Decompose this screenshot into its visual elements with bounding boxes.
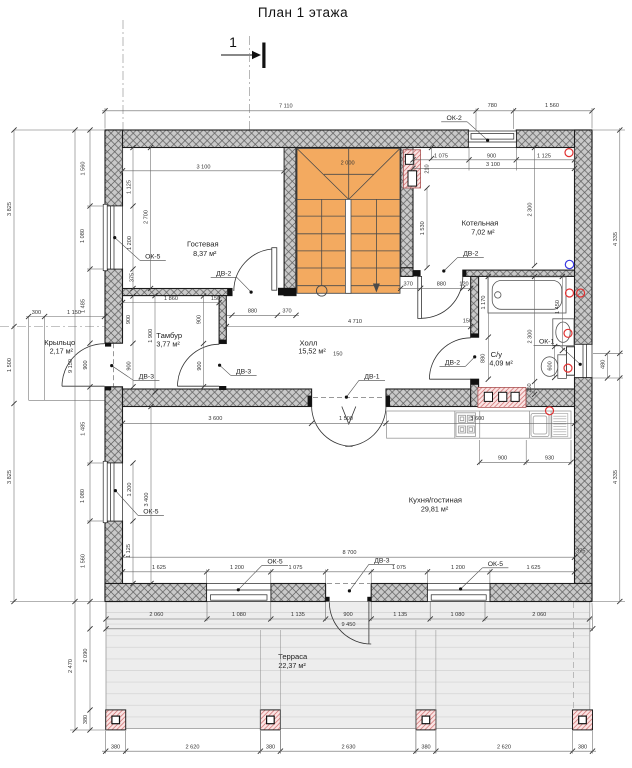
svg-text:1 080: 1 080 [232, 612, 246, 618]
svg-text:1 150: 1 150 [67, 310, 81, 316]
svg-text:1 485: 1 485 [81, 422, 87, 436]
svg-text:4 710: 4 710 [348, 319, 362, 325]
svg-text:ДВ-2: ДВ-2 [216, 271, 231, 278]
svg-text:1 560: 1 560 [81, 162, 87, 176]
svg-text:1 485: 1 485 [81, 299, 87, 313]
svg-text:1 135: 1 135 [291, 612, 305, 618]
svg-text:1 075: 1 075 [392, 565, 406, 571]
svg-text:8,37 м²: 8,37 м² [193, 249, 217, 258]
svg-text:300: 300 [32, 310, 41, 316]
svg-text:4,09 м²: 4,09 м² [489, 359, 513, 368]
svg-text:1 530: 1 530 [420, 221, 426, 235]
svg-text:370: 370 [282, 309, 291, 315]
svg-text:7,02 м²: 7,02 м² [471, 228, 495, 237]
svg-text:930: 930 [545, 455, 554, 461]
svg-text:4 335: 4 335 [613, 232, 619, 246]
svg-text:1 500: 1 500 [7, 358, 13, 372]
svg-text:900: 900 [127, 361, 133, 370]
svg-text:375: 375 [130, 273, 136, 282]
svg-text:3 600: 3 600 [470, 416, 484, 422]
svg-text:900: 900 [83, 360, 89, 369]
svg-text:1 625: 1 625 [152, 565, 166, 571]
svg-text:1 200: 1 200 [230, 565, 244, 571]
svg-text:Кухня/гостиная: Кухня/гостиная [409, 496, 462, 505]
svg-text:250: 250 [527, 383, 533, 392]
svg-text:1 075: 1 075 [434, 153, 448, 159]
svg-text:3 100: 3 100 [197, 164, 211, 170]
svg-text:1 080: 1 080 [80, 489, 86, 503]
svg-text:3 825: 3 825 [7, 202, 13, 216]
svg-text:2 000: 2 000 [341, 161, 355, 167]
svg-text:7 110: 7 110 [279, 104, 293, 110]
svg-text:ОК-5: ОК-5 [488, 561, 504, 568]
svg-text:2 090: 2 090 [83, 649, 89, 663]
svg-text:1 125: 1 125 [126, 544, 132, 558]
svg-text:ДВ-2: ДВ-2 [445, 360, 460, 367]
svg-text:3,77 м²: 3,77 м² [156, 340, 180, 349]
svg-text:1 200: 1 200 [127, 483, 133, 497]
svg-text:1 125: 1 125 [537, 153, 551, 159]
svg-text:880: 880 [437, 282, 446, 288]
svg-text:3 100: 3 100 [486, 162, 500, 168]
svg-text:3 600: 3 600 [208, 416, 222, 422]
svg-text:880: 880 [248, 309, 257, 315]
svg-text:2 060: 2 060 [149, 612, 163, 618]
svg-text:2 620: 2 620 [186, 745, 200, 751]
svg-text:ДВ-1: ДВ-1 [364, 374, 379, 381]
svg-text:480: 480 [600, 360, 606, 369]
svg-text:1 075: 1 075 [289, 565, 303, 571]
svg-text:1 860: 1 860 [164, 296, 178, 302]
svg-text:2,17 м²: 2,17 м² [50, 347, 74, 356]
svg-text:ОК-5: ОК-5 [267, 559, 283, 566]
svg-text:1: 1 [229, 34, 237, 50]
svg-text:Терраса: Терраса [278, 652, 308, 661]
svg-text:1 900: 1 900 [148, 329, 154, 343]
svg-text:900: 900 [487, 153, 496, 159]
svg-text:Котельная: Котельная [462, 219, 499, 228]
svg-text:9 150: 9 150 [68, 359, 74, 373]
svg-text:2 620: 2 620 [497, 745, 511, 751]
svg-text:900: 900 [343, 612, 352, 618]
svg-text:15,52 м²: 15,52 м² [298, 347, 326, 356]
svg-text:900: 900 [197, 361, 203, 370]
svg-text:1 135: 1 135 [393, 612, 407, 618]
svg-text:Гостевая: Гостевая [187, 240, 219, 249]
svg-text:2 300: 2 300 [527, 330, 533, 344]
svg-text:8 700: 8 700 [343, 550, 357, 556]
svg-text:2 300: 2 300 [528, 203, 534, 217]
svg-text:ОК-1: ОК-1 [539, 339, 555, 346]
svg-text:900: 900 [498, 455, 507, 461]
svg-text:ОК-5: ОК-5 [145, 254, 161, 261]
svg-text:380: 380 [111, 745, 120, 751]
svg-text:380: 380 [266, 745, 275, 751]
svg-text:1 200: 1 200 [451, 565, 465, 571]
svg-text:1 560: 1 560 [81, 554, 87, 568]
svg-text:3 825: 3 825 [7, 470, 13, 484]
svg-text:ОК-2: ОК-2 [447, 115, 463, 122]
svg-text:150: 150 [333, 351, 342, 357]
svg-text:1 080: 1 080 [80, 229, 86, 243]
svg-text:120: 120 [459, 282, 468, 288]
svg-text:2 470: 2 470 [68, 659, 74, 673]
svg-text:9 450: 9 450 [342, 622, 356, 628]
svg-text:150: 150 [211, 296, 220, 302]
svg-text:780: 780 [488, 103, 497, 109]
svg-text:ДВ-3: ДВ-3 [374, 558, 389, 565]
svg-text:2 060: 2 060 [532, 612, 546, 618]
svg-text:1 450: 1 450 [555, 300, 561, 314]
svg-text:880: 880 [481, 354, 487, 363]
svg-text:ДВ-3: ДВ-3 [236, 369, 251, 376]
svg-text:380: 380 [83, 715, 89, 724]
svg-text:375: 375 [576, 549, 585, 555]
svg-text:2 630: 2 630 [342, 745, 356, 751]
svg-text:900: 900 [197, 315, 203, 324]
svg-text:380: 380 [421, 745, 430, 751]
svg-text:600: 600 [548, 361, 554, 370]
svg-text:1 125: 1 125 [126, 180, 132, 194]
svg-text:2 700: 2 700 [144, 210, 150, 224]
svg-text:210: 210 [425, 164, 431, 173]
svg-text:900: 900 [126, 315, 132, 324]
svg-text:1 625: 1 625 [527, 565, 541, 571]
svg-text:1 560: 1 560 [545, 103, 559, 109]
svg-text:1 080: 1 080 [451, 612, 465, 618]
svg-text:370: 370 [404, 282, 413, 288]
svg-text:ДВ-3: ДВ-3 [139, 374, 154, 381]
svg-text:1 170: 1 170 [481, 296, 487, 310]
svg-text:22,37 м²: 22,37 м² [278, 661, 306, 670]
svg-text:29,81 м²: 29,81 м² [421, 505, 449, 514]
svg-text:1 200: 1 200 [127, 236, 133, 250]
svg-text:План 1 этажа: План 1 этажа [258, 5, 348, 20]
svg-text:1 500: 1 500 [339, 416, 353, 422]
svg-text:380: 380 [578, 745, 587, 751]
svg-text:4 335: 4 335 [613, 470, 619, 484]
svg-text:150: 150 [463, 319, 472, 325]
svg-text:3 400: 3 400 [144, 493, 150, 507]
svg-text:ДВ-2: ДВ-2 [463, 251, 478, 258]
